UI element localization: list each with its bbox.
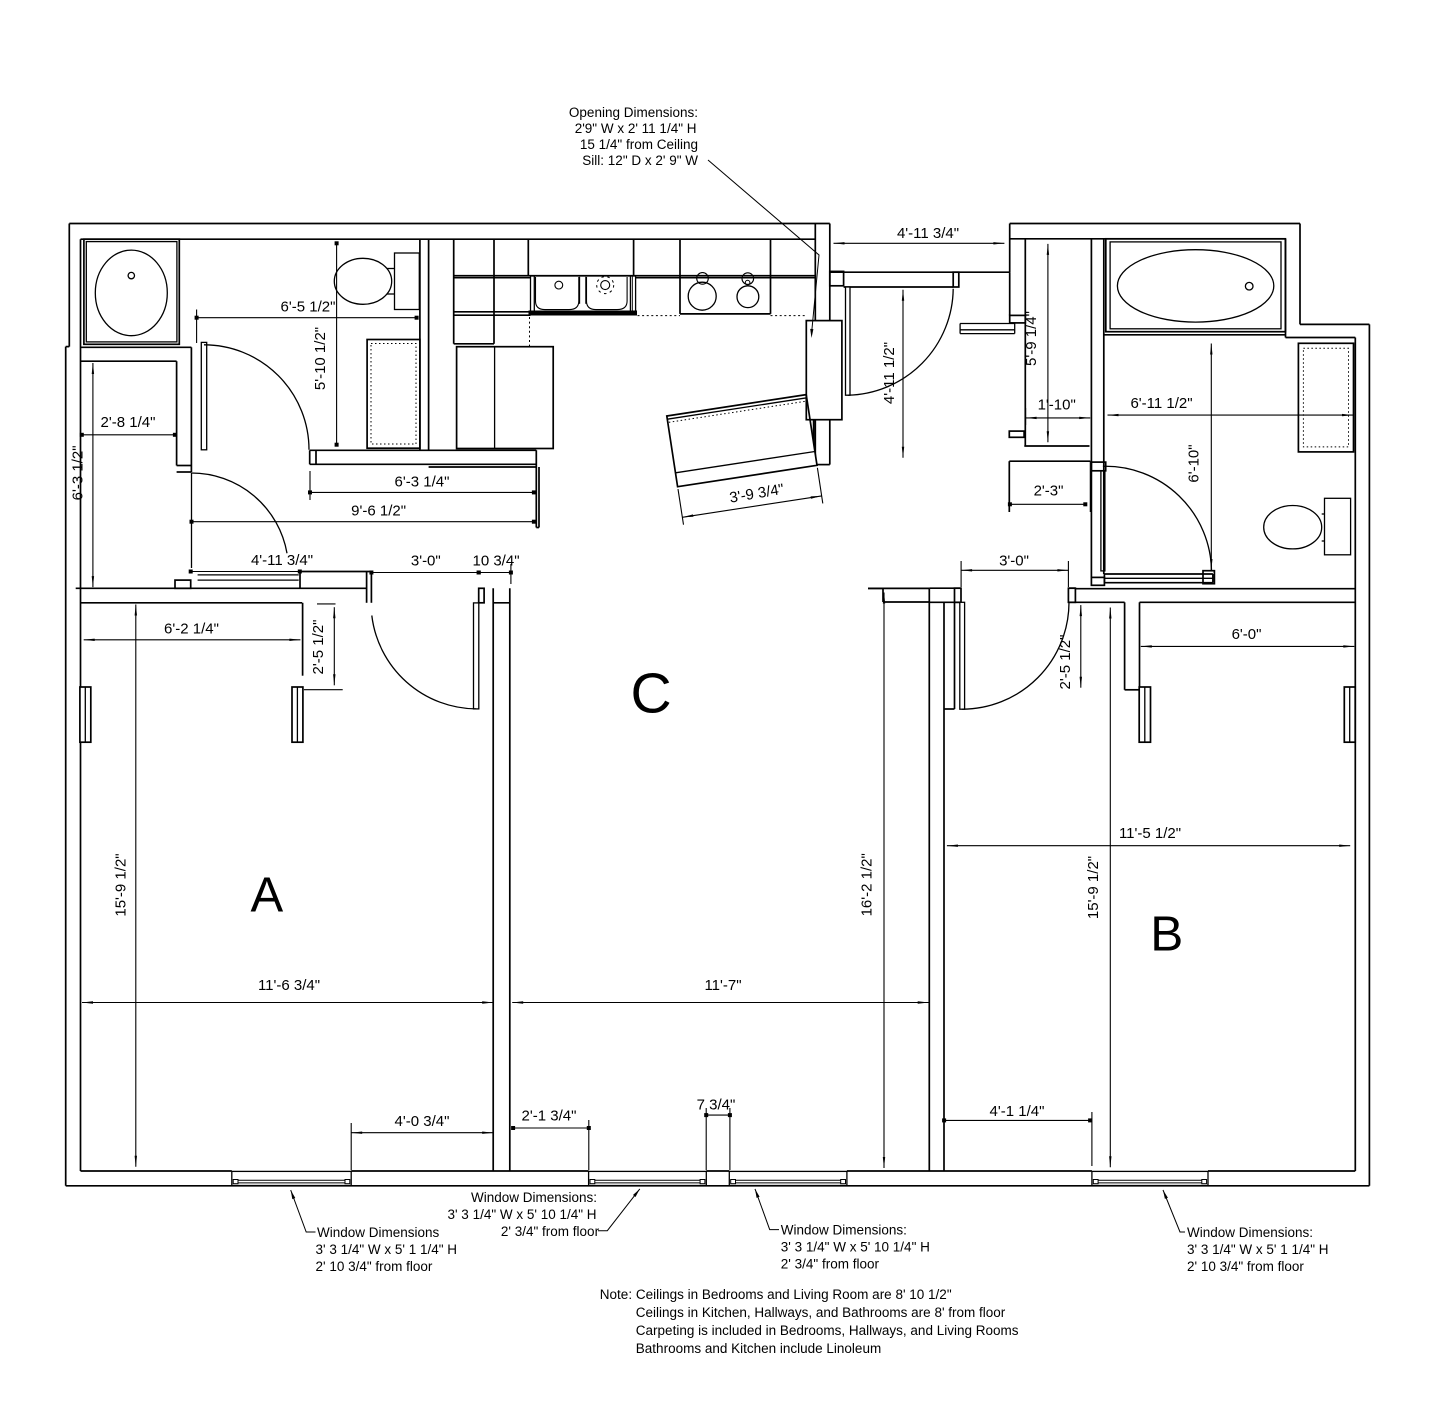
svg-text:5'-10 1/2": 5'-10 1/2" [312, 327, 329, 390]
svg-text:11'-7": 11'-7" [704, 977, 741, 994]
svg-text:2' 3/4" from floor: 2' 3/4" from floor [501, 1224, 600, 1239]
svg-text:7 3/4": 7 3/4" [697, 1097, 736, 1114]
svg-text:Note: Ceilings in Bedrooms and: Note: Ceilings in Bedrooms and Living Ro… [600, 1287, 952, 1302]
svg-text:Window Dimensions:: Window Dimensions: [781, 1223, 907, 1238]
svg-text:Carpeting is included in Bedro: Carpeting is included in Bedrooms, Hallw… [636, 1323, 1019, 1338]
svg-text:Bathrooms and Kitchen include: Bathrooms and Kitchen include Linoleum [636, 1341, 881, 1356]
svg-text:6'-10": 6'-10" [1186, 444, 1203, 482]
svg-text:3' 3 1/4" W x 5' 1 1/4" H: 3' 3 1/4" W x 5' 1 1/4" H [316, 1242, 458, 1257]
svg-text:5'-9 1/4": 5'-9 1/4" [1023, 311, 1040, 366]
svg-text:4'-11 1/2": 4'-11 1/2" [881, 342, 898, 404]
svg-text:3' 3 1/4" W x 5' 10 1/4" H: 3' 3 1/4" W x 5' 10 1/4" H [447, 1207, 596, 1222]
svg-text:4'-1 1/4": 4'-1 1/4" [990, 1103, 1045, 1120]
svg-text:15'-9 1/2": 15'-9 1/2" [113, 853, 130, 916]
svg-text:2'-8 1/4": 2'-8 1/4" [101, 414, 156, 431]
svg-text:Opening Dimensions:: Opening Dimensions: [569, 105, 698, 120]
svg-text:1'-10": 1'-10" [1038, 396, 1076, 413]
svg-text:Window Dimensions:: Window Dimensions: [471, 1190, 597, 1205]
svg-text:6'-3 1/2": 6'-3 1/2" [70, 445, 87, 500]
svg-text:3'-0": 3'-0" [999, 552, 1029, 569]
svg-text:6'-3 1/4": 6'-3 1/4" [395, 474, 450, 491]
svg-text:2'-5 1/2": 2'-5 1/2" [1057, 635, 1074, 690]
svg-text:4'-11 3/4": 4'-11 3/4" [897, 225, 959, 242]
svg-text:4'-11 3/4": 4'-11 3/4" [251, 552, 313, 569]
svg-text:2'-1 3/4": 2'-1 3/4" [522, 1108, 577, 1125]
svg-text:11'-5 1/2": 11'-5 1/2" [1119, 825, 1181, 842]
svg-text:Window Dimensions: Window Dimensions [317, 1225, 440, 1240]
svg-text:3' 3 1/4" W x 5' 10 1/4" H: 3' 3 1/4" W x 5' 10 1/4" H [781, 1240, 930, 1255]
svg-text:15'-9 1/2": 15'-9 1/2" [1085, 856, 1102, 919]
svg-text:Ceilings in Kitchen, Hallways,: Ceilings in Kitchen, Hallways, and Bathr… [636, 1305, 1006, 1320]
svg-text:2'-3": 2'-3" [1034, 483, 1064, 500]
svg-text:2' 10 3/4" from floor: 2' 10 3/4" from floor [316, 1259, 433, 1274]
svg-text:2' 3/4" from floor: 2' 3/4" from floor [781, 1257, 880, 1272]
svg-text:10 3/4": 10 3/4" [472, 552, 519, 569]
svg-text:2' 10 3/4" from floor: 2' 10 3/4" from floor [1187, 1259, 1304, 1274]
svg-text:2'-5 1/2": 2'-5 1/2" [310, 620, 327, 675]
svg-text:15 1/4" from Ceiling: 15 1/4" from Ceiling [580, 137, 698, 152]
svg-text:6'-5 1/2": 6'-5 1/2" [281, 299, 336, 316]
svg-text:Window Dimensions:: Window Dimensions: [1187, 1225, 1313, 1240]
svg-text:6'-11 1/2": 6'-11 1/2" [1130, 395, 1192, 412]
svg-text:4'-0 3/4": 4'-0 3/4" [395, 1113, 450, 1130]
svg-text:6'-0": 6'-0" [1232, 626, 1262, 643]
svg-text:11'-6 3/4": 11'-6 3/4" [258, 977, 320, 994]
svg-text:16'-2 1/2": 16'-2 1/2" [859, 853, 876, 916]
svg-text:C: C [631, 662, 672, 726]
svg-text:3' 3 1/4" W x 5' 1 1/4" H: 3' 3 1/4" W x 5' 1 1/4" H [1187, 1242, 1329, 1257]
svg-text:6'-2 1/4": 6'-2 1/4" [164, 621, 219, 638]
svg-text:B: B [1150, 907, 1183, 962]
svg-text:3'-0": 3'-0" [411, 552, 441, 569]
svg-text:9'-6 1/2": 9'-6 1/2" [351, 503, 406, 520]
svg-text:2'9" W x 2' 11 1/4" H: 2'9" W x 2' 11 1/4" H [575, 121, 697, 136]
svg-text:Sill: 12" D x 2' 9" W: Sill: 12" D x 2' 9" W [582, 153, 698, 168]
svg-text:A: A [251, 869, 284, 923]
